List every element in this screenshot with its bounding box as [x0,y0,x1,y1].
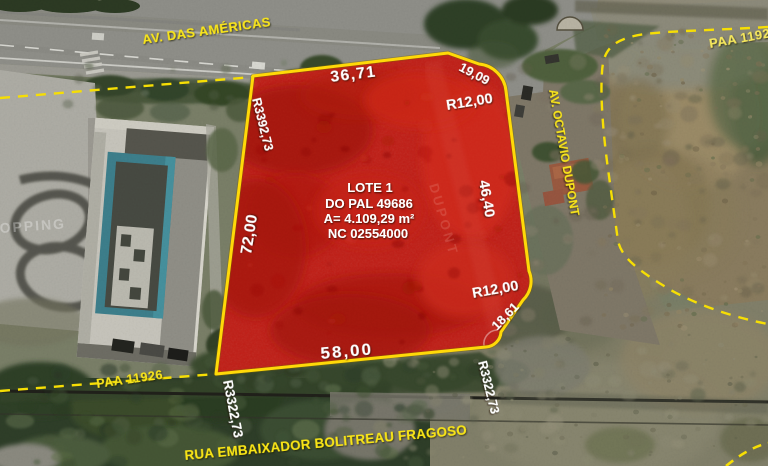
svg-text:A= 4.109,29 m²: A= 4.109,29 m² [324,211,415,226]
svg-text:LOTE 1: LOTE 1 [347,180,393,195]
svg-text:DO PAL 49686: DO PAL 49686 [325,196,413,211]
svg-text:NC 02554000: NC 02554000 [328,226,408,241]
